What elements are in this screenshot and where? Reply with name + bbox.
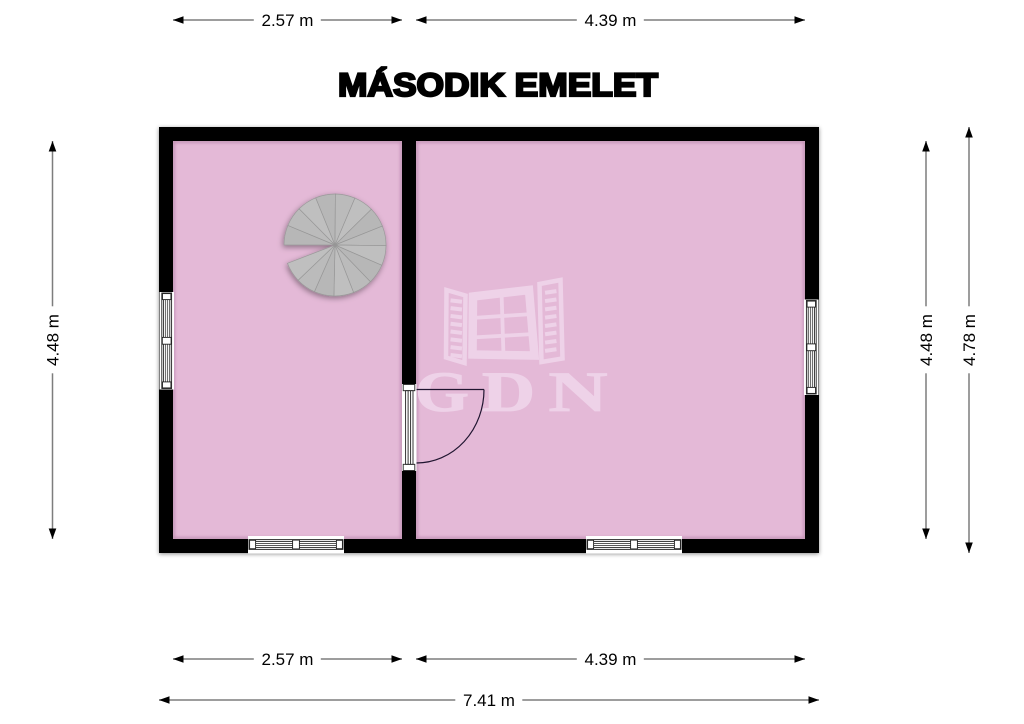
svg-text:7.41 m: 7.41 m: [463, 691, 515, 710]
svg-text:4.48 m: 4.48 m: [917, 314, 936, 366]
svg-text:4.48 m: 4.48 m: [44, 314, 63, 366]
svg-text:N: N: [548, 361, 607, 424]
svg-text:D: D: [482, 361, 536, 424]
svg-text:4.78 m: 4.78 m: [960, 314, 979, 366]
svg-text:2.57 m: 2.57 m: [262, 650, 314, 669]
svg-text:4.39 m: 4.39 m: [585, 11, 637, 30]
svg-text:2.57 m: 2.57 m: [262, 11, 314, 30]
svg-text:4.39 m: 4.39 m: [585, 650, 637, 669]
svg-text:MÁSODIK EMELET: MÁSODIK EMELET: [338, 67, 659, 103]
svg-text:G: G: [415, 360, 469, 424]
